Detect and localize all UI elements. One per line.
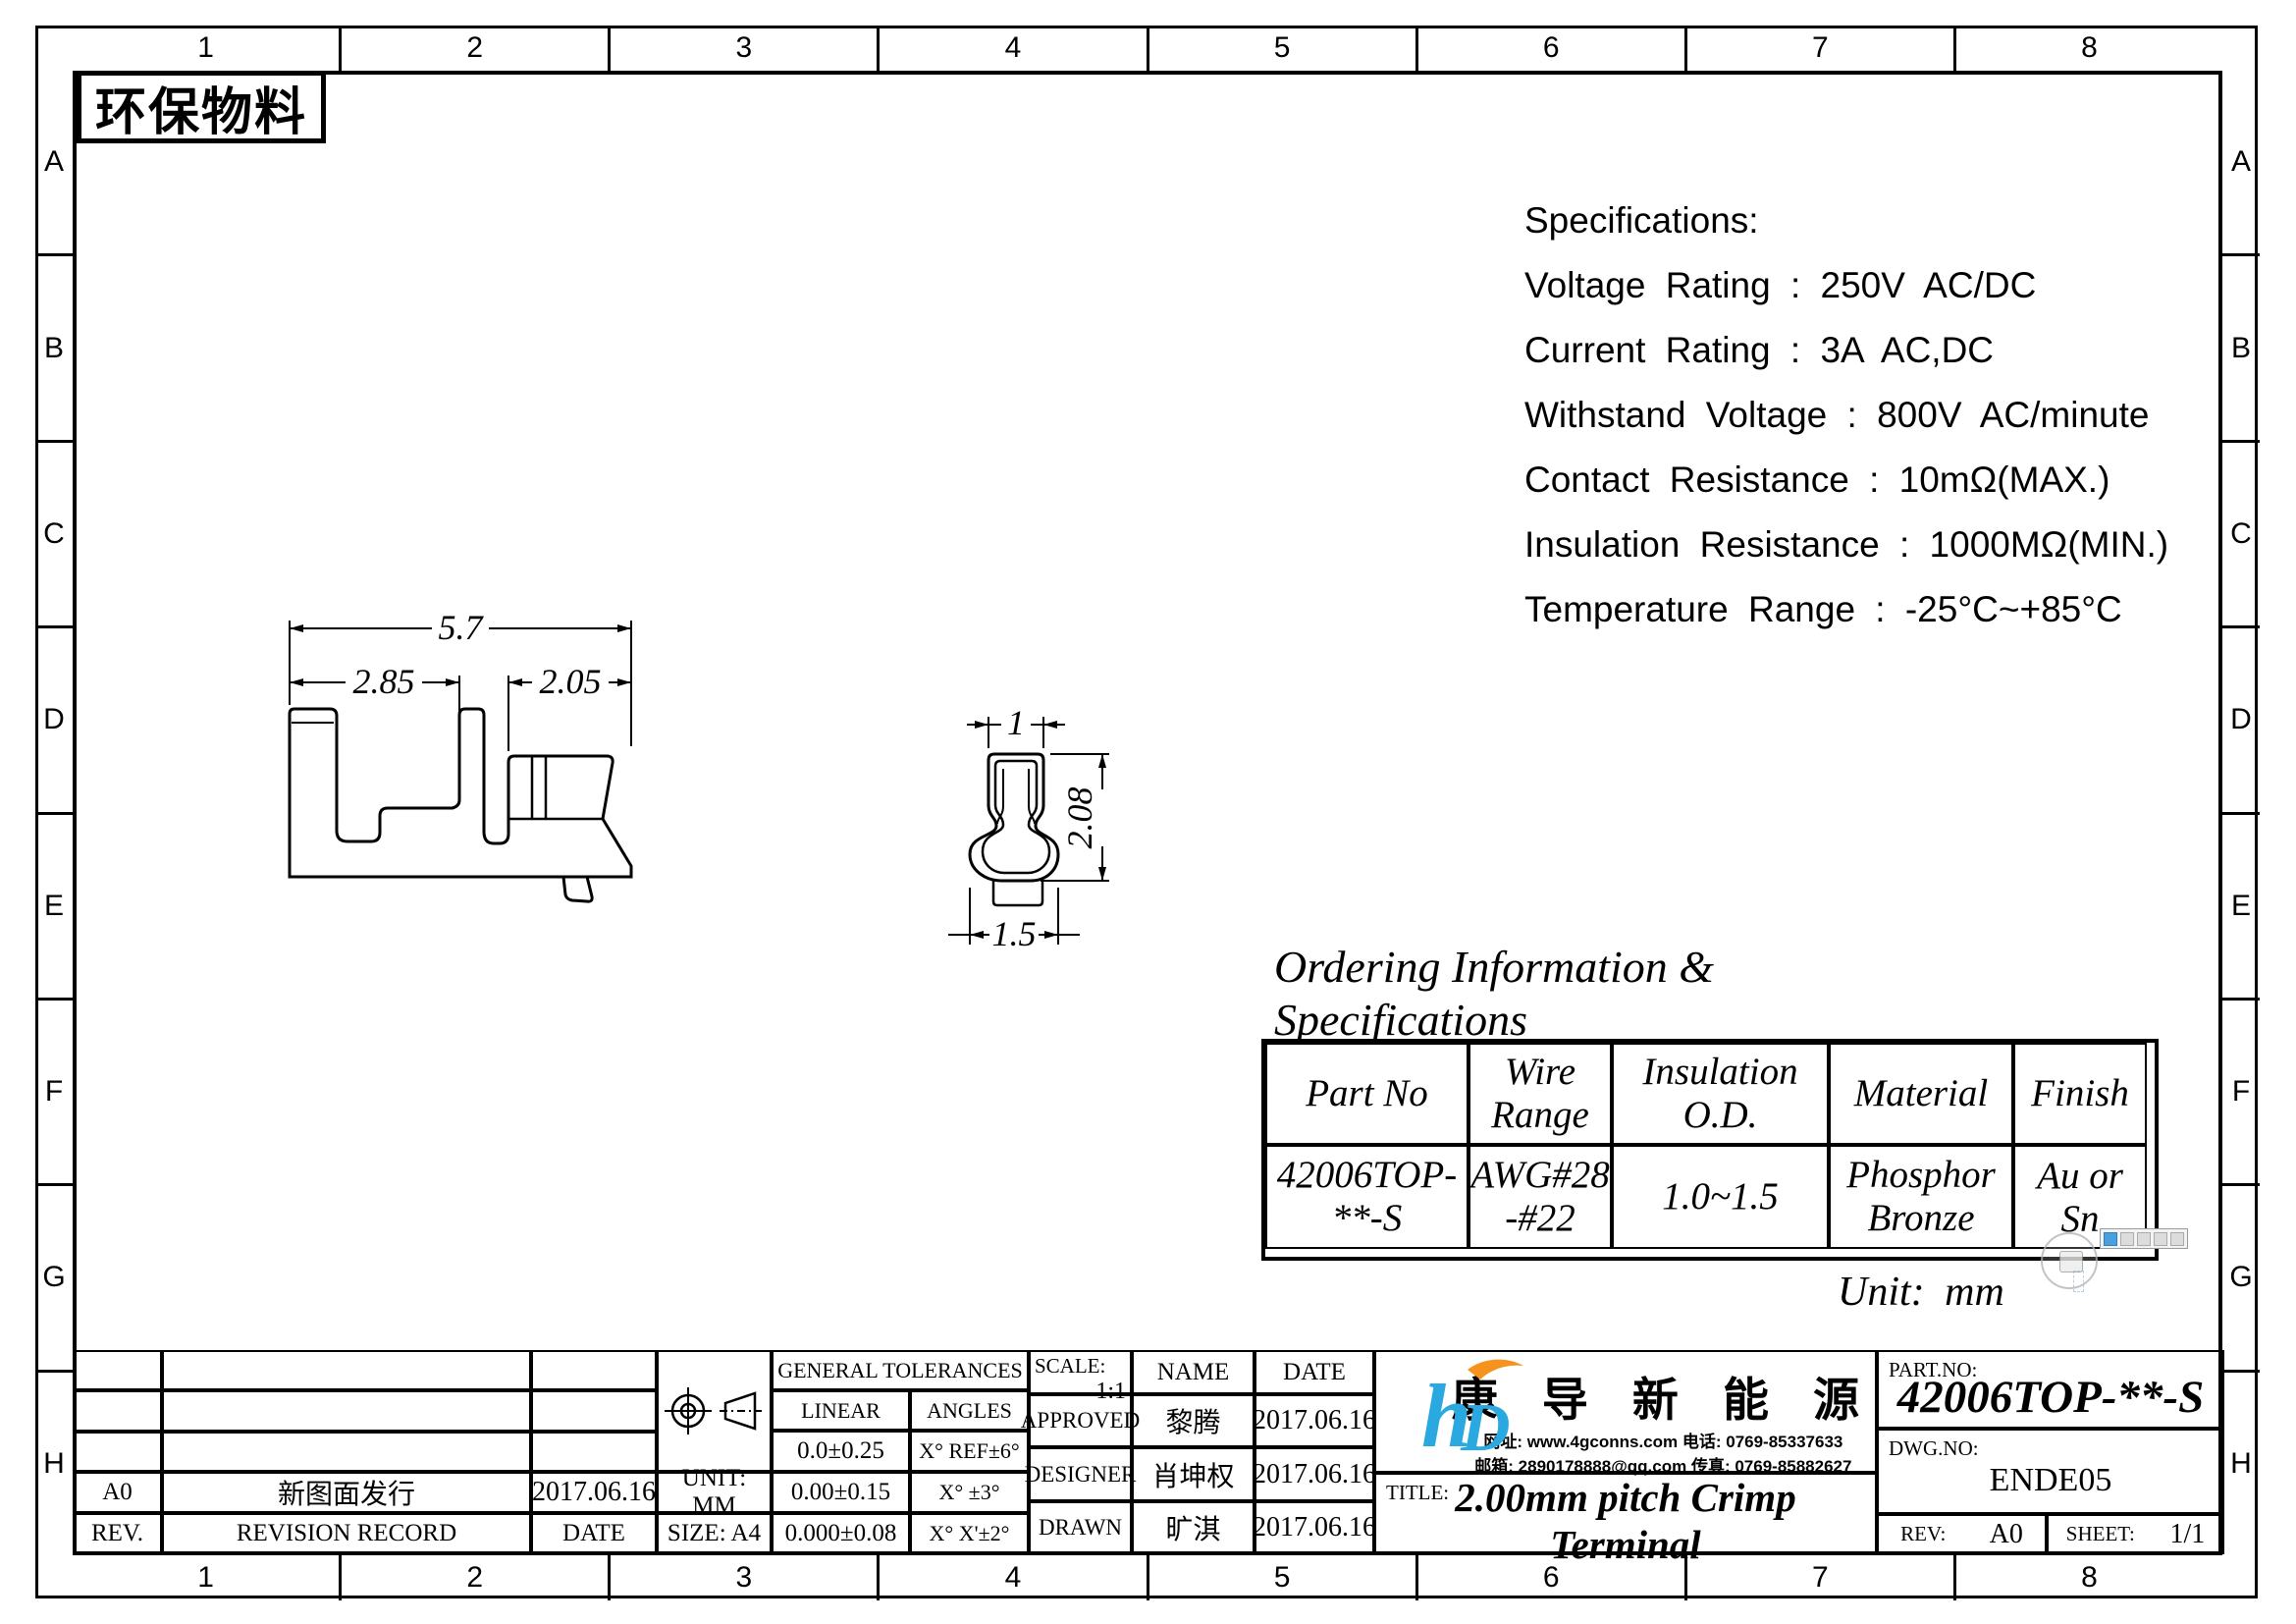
zone-row-label: H — [35, 1370, 73, 1555]
zone-col-label: 1 — [73, 26, 339, 71]
capture-toolbar[interactable] — [2100, 1228, 2188, 1249]
zone-col-label: 1 — [73, 1555, 339, 1600]
save-icon[interactable] — [2170, 1232, 2184, 1246]
ordering-header-insulation-od: Insulation O.D. — [1612, 1043, 1829, 1145]
revision-date-header: DATE — [531, 1513, 657, 1554]
date-header: DATE — [1255, 1350, 1374, 1394]
revision-rev-value: A0 — [73, 1472, 162, 1513]
title-block: A0 新图面发行 2017.06.16 REV. REVISION RECORD… — [73, 1350, 2224, 1554]
approved-date: 2017.06.16 — [1255, 1394, 1374, 1447]
title-cell: TITLE: 2.00mm pitch Crimp Terminal — [1374, 1473, 1877, 1554]
pin-icon[interactable] — [2154, 1232, 2167, 1246]
dim-label-height: 2.08 — [1060, 787, 1099, 849]
drawing-sheet: 1 2 3 4 5 6 7 8 1 2 3 4 5 6 7 8 A B C D … — [0, 0, 2296, 1624]
side-view-drawing: 5.7 2.85 2.05 — [275, 609, 663, 947]
size-cell: SIZE: A4 — [657, 1513, 772, 1554]
svg-text:D: D — [1460, 1390, 1511, 1466]
terminal-leg — [563, 877, 592, 901]
spec-line: Contact Resistance : 10mΩ(MAX.) — [1524, 448, 2168, 513]
ordering-value-material: Phosphor Bronze — [1829, 1145, 2013, 1249]
zone-col-label: 2 — [339, 1555, 608, 1600]
unit-cell: UNIT: MM — [657, 1472, 772, 1513]
zone-row-label: D — [2222, 625, 2260, 811]
zone-rows-right: A B C D E F G H — [2222, 71, 2260, 1555]
third-angle-projection-icon — [661, 1381, 769, 1440]
angle-tolerance-row: X° X'±2° — [910, 1513, 1029, 1554]
drawn-name: 旷淇 — [1132, 1501, 1255, 1554]
revision-empty-cell — [531, 1432, 657, 1472]
spec-line: Withstand Voltage : 800V AC/minute — [1524, 383, 2168, 448]
ordering-table-title: Ordering Information & Specifications — [1274, 941, 1714, 1047]
ordering-value-insulation-od: 1.0~1.5 — [1612, 1145, 1829, 1249]
revision-empty-cell — [162, 1350, 531, 1390]
zone-col-label: 5 — [1147, 26, 1415, 71]
name-header: NAME — [1132, 1350, 1255, 1394]
dim-label-right: 2.05 — [540, 662, 602, 701]
capture-pin-marker — [2073, 1271, 2084, 1292]
linear-tolerance-row: 0.0±0.25 — [772, 1431, 910, 1472]
terminal-end-outline — [970, 754, 1058, 881]
close-icon[interactable] — [2137, 1232, 2151, 1246]
dwg-no-value: ENDE05 — [1990, 1444, 2112, 1499]
designer-label: DESIGNER — [1029, 1447, 1132, 1501]
dim-label-top-width: 1 — [1007, 703, 1025, 742]
revision-empty-cell — [162, 1390, 531, 1432]
dwg-no-label: DWG.NO: — [1883, 1433, 1985, 1465]
ordering-header-material: Material — [1829, 1043, 2013, 1145]
scale-cell: SCALE: 1:1 — [1029, 1350, 1132, 1394]
zone-col-label: 7 — [1684, 26, 1953, 71]
revision-rev-header: REV. — [73, 1513, 162, 1554]
sheet-cell: SHEET: 1/1 — [2047, 1514, 2224, 1554]
general-tolerances-title: GENERAL TOLERANCES — [772, 1350, 1029, 1390]
capture-anchor-button[interactable] — [2059, 1251, 2083, 1272]
zone-row-label: G — [35, 1183, 73, 1369]
ordering-table: Part No Wire Range Insulation O.D. Mater… — [1261, 1039, 2159, 1261]
spec-line: Temperature Range : -25°C~+85°C — [1524, 577, 2168, 642]
linear-tolerance-row: 0.000±0.08 — [772, 1513, 910, 1554]
revision-empty-cell — [73, 1390, 162, 1432]
company-logo: h D — [1376, 1352, 1452, 1470]
part-no-label: PART.NO: — [1883, 1354, 1983, 1386]
end-view-drawing: 1 2.08 1.5 — [942, 687, 1173, 962]
ordering-value-wire-range: AWG#28 -#22 — [1468, 1145, 1612, 1249]
ordering-header-wire-range: Wire Range — [1468, 1043, 1612, 1145]
zone-col-label: 3 — [608, 1555, 877, 1600]
dim-label-left: 2.85 — [353, 662, 415, 701]
zone-row-label: A — [2222, 71, 2260, 253]
zone-col-label: 8 — [1953, 1555, 2222, 1600]
approved-label: APPROVED — [1029, 1394, 1132, 1447]
angle-tolerance-row: X° ±3° — [910, 1472, 1029, 1513]
approved-name: 黎腾 — [1132, 1394, 1255, 1447]
zone-col-label: 3 — [608, 26, 877, 71]
angle-tolerance-row: X° REF±6° — [910, 1431, 1029, 1472]
designer-name: 肖坤权 — [1132, 1447, 1255, 1501]
dim-label-bottom-width: 1.5 — [992, 914, 1037, 953]
rev-cell: REV: A0 — [1877, 1514, 2047, 1554]
ordering-header-finish: Finish — [2013, 1043, 2147, 1145]
zone-col-label: 2 — [339, 26, 608, 71]
zone-columns-bottom: 1 2 3 4 5 6 7 8 — [73, 1555, 2222, 1600]
revision-empty-cell — [531, 1390, 657, 1432]
zone-col-label: 4 — [877, 26, 1146, 71]
specifications-title: Specifications: — [1524, 189, 2168, 253]
capture-tool-icon[interactable] — [2104, 1232, 2117, 1246]
undo-icon[interactable] — [2120, 1232, 2134, 1246]
spec-line: Voltage Rating : 250V AC/DC — [1524, 253, 2168, 318]
zone-row-label: C — [35, 440, 73, 625]
eco-material-badge: 环保物料 — [77, 71, 326, 143]
sheet-label: SHEET: — [2066, 1522, 2135, 1546]
unit-note: Unit: mm — [1838, 1269, 2004, 1316]
zone-row-label: E — [2222, 812, 2260, 998]
zone-row-label: F — [2222, 998, 2260, 1183]
dwg-no-cell: DWG.NO: ENDE05 — [1877, 1429, 2224, 1514]
designer-date: 2017.06.16 — [1255, 1447, 1374, 1501]
zone-col-label: 8 — [1953, 26, 2222, 71]
zone-row-label: H — [2222, 1370, 2260, 1555]
zone-row-label: D — [35, 625, 73, 811]
specifications-block: Specifications: Voltage Rating : 250V AC… — [1524, 189, 2168, 642]
zone-row-label: E — [35, 812, 73, 998]
zone-col-label: 6 — [1415, 26, 1684, 71]
ordering-value-part-no: 42006TOP- **-S — [1265, 1145, 1468, 1249]
drawn-date: 2017.06.16 — [1255, 1501, 1374, 1554]
drawing-title: 2.00mm pitch Crimp Terminal — [1376, 1460, 1875, 1568]
hd-logo-icon: h D — [1414, 1352, 1531, 1470]
title-label: TITLE: — [1380, 1477, 1455, 1509]
revision-record-header: REVISION RECORD — [162, 1513, 531, 1554]
projection-symbol-cell — [657, 1350, 772, 1472]
terminal-end-base — [993, 881, 1042, 905]
revision-date-value: 2017.06.16 — [531, 1472, 657, 1513]
drawn-label: DRAWN — [1029, 1501, 1132, 1554]
revision-empty-cell — [162, 1432, 531, 1472]
rev-value: A0 — [1990, 1519, 2023, 1550]
zone-row-label: A — [35, 71, 73, 253]
angles-header: ANGLES — [910, 1390, 1029, 1431]
linear-tolerance-row: 0.00±0.15 — [772, 1472, 910, 1513]
revision-empty-cell — [73, 1432, 162, 1472]
zone-row-label: F — [35, 998, 73, 1183]
sheet-value: 1/1 — [2169, 1519, 2205, 1550]
zone-rows-left: A B C D E F G H — [35, 71, 73, 1555]
zone-row-label: G — [2222, 1183, 2260, 1369]
rev-label: REV: — [1900, 1522, 1946, 1546]
zone-row-label: B — [35, 253, 73, 439]
company-cell: h D 康 导 新 能 源 网址: www.4gconns.com 电话: 07… — [1374, 1350, 1877, 1473]
spec-line: Insulation Resistance : 1000MΩ(MIN.) — [1524, 513, 2168, 577]
spec-line: Current Rating : 3A AC,DC — [1524, 318, 2168, 383]
revision-record-value: 新图面发行 — [162, 1472, 531, 1513]
zone-columns-top: 1 2 3 4 5 6 7 8 — [73, 26, 2222, 71]
revision-empty-cell — [531, 1350, 657, 1390]
zone-col-label: 4 — [877, 1555, 1146, 1600]
dim-label-total: 5.7 — [439, 608, 485, 647]
zone-col-label: 5 — [1147, 1555, 1415, 1600]
linear-header: LINEAR — [772, 1390, 910, 1431]
capture-anchor-dial[interactable] — [2041, 1232, 2098, 1289]
revision-empty-cell — [73, 1350, 162, 1390]
ordering-header-part-no: Part No — [1265, 1043, 1468, 1145]
zone-row-label: C — [2222, 440, 2260, 625]
zone-row-label: B — [2222, 253, 2260, 439]
part-no-cell: PART.NO: 42006TOP-**-S — [1877, 1350, 2224, 1429]
